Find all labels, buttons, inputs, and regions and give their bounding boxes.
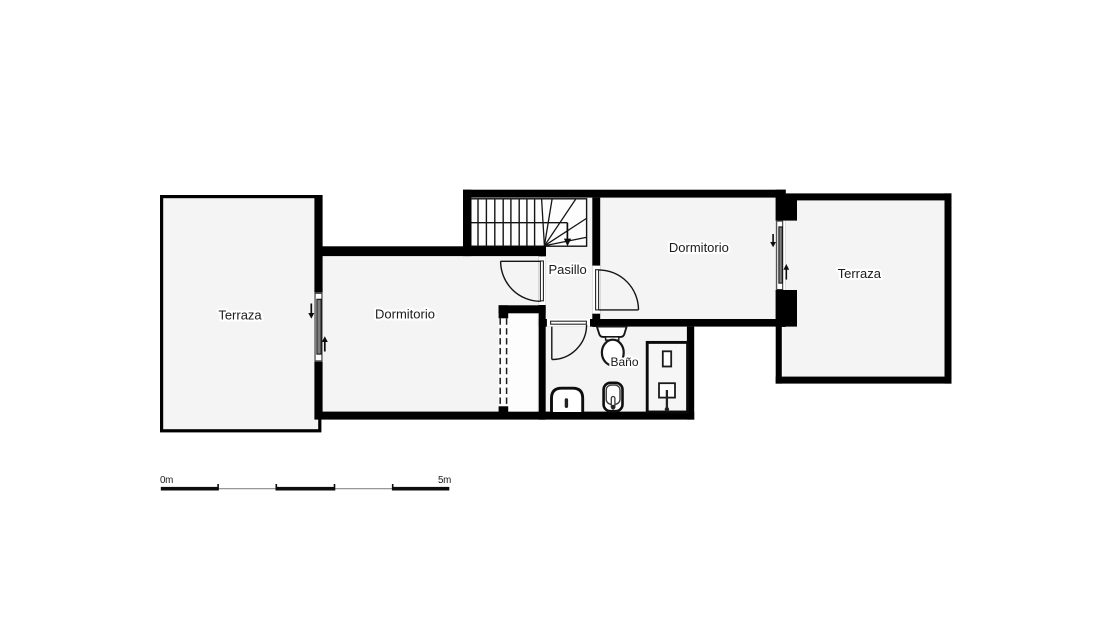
svg-text:Terraza: Terraza (838, 266, 882, 281)
svg-text:Baño: Baño (610, 355, 638, 369)
svg-text:Dormitorio: Dormitorio (375, 307, 435, 322)
svg-text:0m: 0m (160, 475, 173, 486)
svg-text:Pasillo: Pasillo (548, 262, 586, 277)
svg-text:Terraza: Terraza (218, 308, 262, 323)
svg-text:Dormitorio: Dormitorio (669, 240, 729, 255)
svg-text:5m: 5m (438, 475, 451, 486)
